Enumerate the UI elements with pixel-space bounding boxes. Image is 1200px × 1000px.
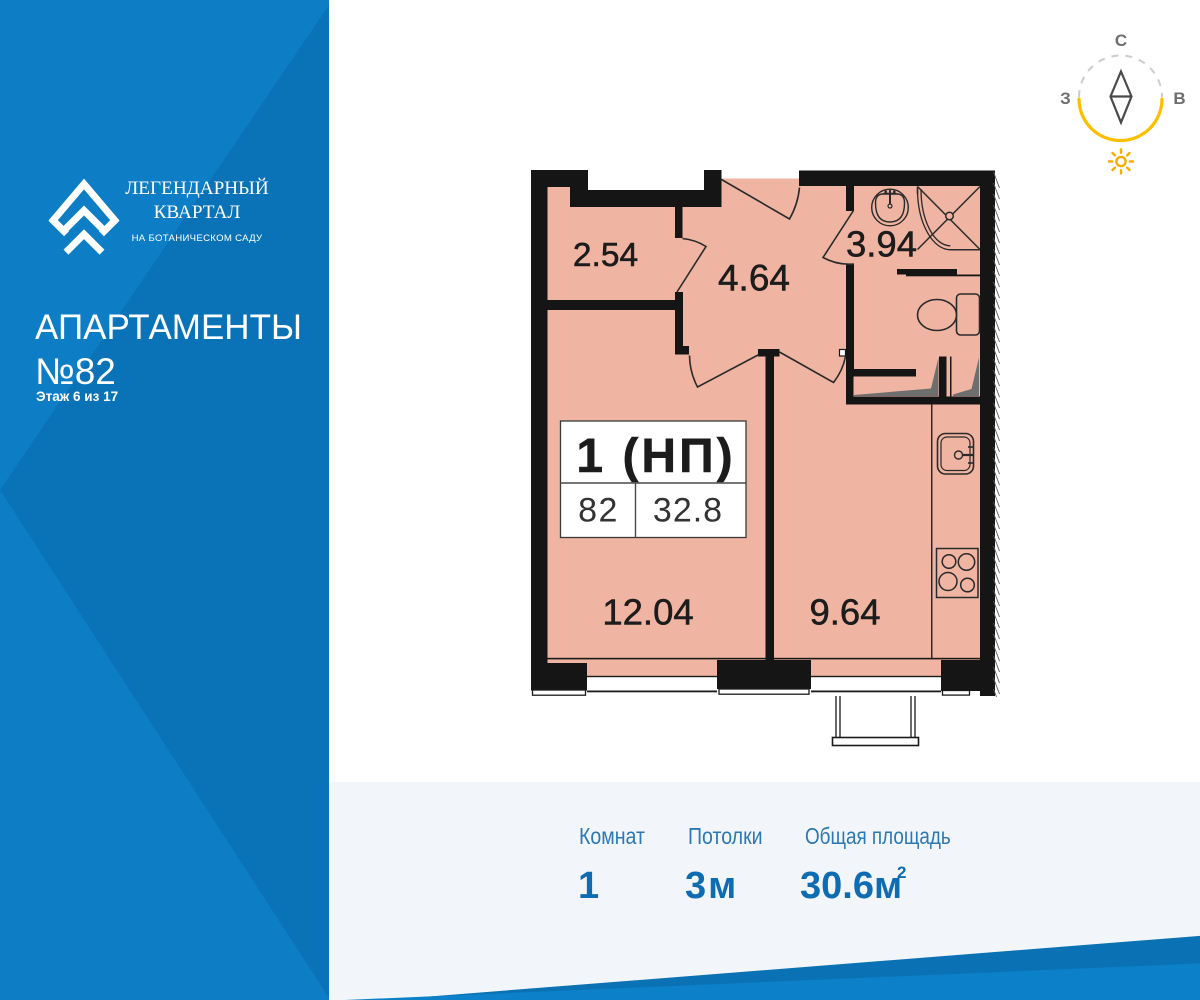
svg-text:4.64: 4.64 [718,258,790,299]
svg-text:С: С [1115,31,1127,50]
svg-text:2.54: 2.54 [573,237,638,274]
svg-text:32.8: 32.8 [653,492,723,530]
svg-text:12.04: 12.04 [602,592,693,633]
svg-text:3.94: 3.94 [846,224,917,265]
svg-text:82: 82 [578,492,619,530]
svg-text:1 (НП): 1 (НП) [576,430,735,483]
svg-text:В: В [1173,89,1185,108]
svg-text:З: З [1060,89,1071,108]
svg-text:9.64: 9.64 [809,592,880,633]
